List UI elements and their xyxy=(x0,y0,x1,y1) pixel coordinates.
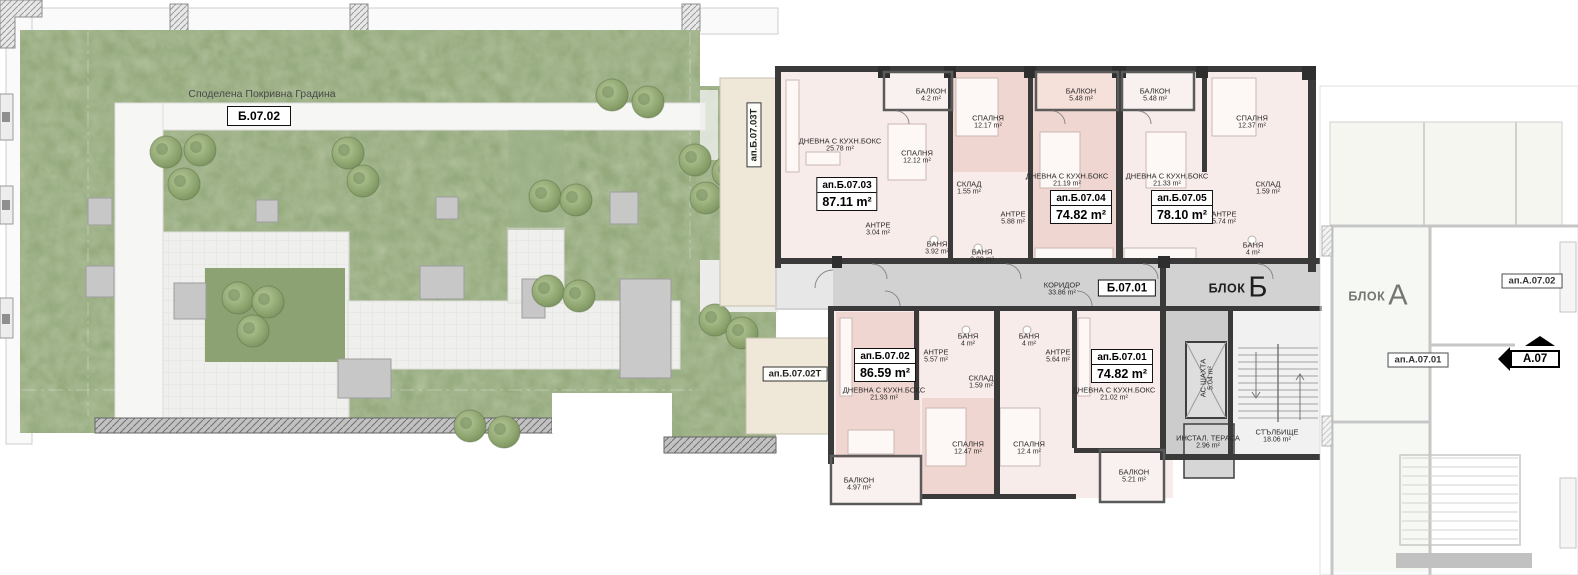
apartment-label-a0701[interactable]: ап.А.07.01 xyxy=(1388,353,1449,368)
room-label-balkon: БАЛКОН5.48 m² xyxy=(1140,86,1170,103)
apartment-card-b0705[interactable]: ап.Б.07.05 78.10 m² xyxy=(1151,190,1213,224)
apartment-card-b0704[interactable]: ап.Б.07.04 74.82 m² xyxy=(1050,190,1112,224)
room-label-dnevna: ДНЕВНА С КУХН.БОКС21.02 m² xyxy=(1073,385,1156,402)
room-label-spalnya: СПАЛНЯ12.37 m² xyxy=(1236,113,1268,130)
room-label-dnevna: ДНЕВНА С КУХН.БОКС21.93 m² xyxy=(843,385,926,402)
room-label-spalnya: СПАЛНЯ12.4 m² xyxy=(1013,439,1045,456)
room-label-sklad: СКЛАД1.59 m² xyxy=(1255,179,1280,196)
room-label-shaft: АС ШАХТА5.04 m² xyxy=(1198,359,1215,398)
room-label-antre: АНТРЕ3.04 m² xyxy=(865,220,890,237)
block-a-plan xyxy=(1320,86,1578,575)
block-b-name: БЛОК Б xyxy=(1209,274,1268,303)
floorplan-page: Споделена Покривна Градина Б.07.02 ап.Б.… xyxy=(0,0,1578,575)
apartment-card-b0702[interactable]: ап.Б.07.02 86.59 m² xyxy=(854,348,916,382)
apartment-card-b0703[interactable]: ап.Б.07.03 87.11 m² xyxy=(816,177,877,211)
room-label-balkon: БАЛКОН5.48 m² xyxy=(1066,86,1096,103)
room-label-banya: БАНЯ4 m² xyxy=(1243,240,1264,257)
block-a-name: БЛОК А xyxy=(1348,282,1407,311)
room-label-antre: АНТРЕ5.88 m² xyxy=(1000,209,1025,226)
room-label-banya: БАНЯ4 m² xyxy=(958,331,979,348)
apartment-card-b0701[interactable]: ап.Б.07.01 74.82 m² xyxy=(1091,349,1153,383)
floorplan-canvas xyxy=(0,0,1578,575)
room-label-spalnya: СПАЛНЯ12.17 m² xyxy=(972,113,1004,130)
room-label-dnevna: ДНЕВНА С КУХН.БОКС21.33 m² xyxy=(1126,171,1209,188)
room-label-antre: АНТРЕ5.57 m² xyxy=(923,347,948,364)
room-label-sklad: СКЛАД1.55 m² xyxy=(956,179,981,196)
garden-plan xyxy=(0,0,782,453)
neighbor-balcony-stubs xyxy=(0,94,13,338)
corridor-zone-label[interactable]: Б.07.01 xyxy=(1098,280,1156,297)
marker-up-arrow-icon xyxy=(1525,336,1555,346)
room-label-spalnya: СПАЛНЯ12.47 m² xyxy=(952,439,984,456)
terrace-label-b0703t[interactable]: ап.Б.07.03Т xyxy=(747,103,762,168)
room-label-banya: БАНЯ4 m² xyxy=(1019,331,1040,348)
room-label-sklad: СКЛАД1.59 m² xyxy=(968,373,993,390)
garden-title: Споделена Покривна Градина xyxy=(188,88,335,100)
room-label-balkon: БАЛКОН5.21 m² xyxy=(1119,467,1149,484)
marker-left-arrow-icon xyxy=(1498,347,1510,371)
room-label-instal-terasa: ИНСТАЛ. ТЕРАСА2.96 m² xyxy=(1176,433,1240,450)
a07-marker[interactable]: А.07 xyxy=(1498,336,1564,371)
room-label-dnevna: ДНЕВНА С КУХН.БОКС25.78 m² xyxy=(799,136,882,153)
apartment-label-a0702[interactable]: ап.А.07.02 xyxy=(1502,274,1563,289)
room-label-banya: БАНЯ3.92 m² xyxy=(925,239,949,256)
garden-zone-label[interactable]: Б.07.02 xyxy=(227,106,291,126)
room-label-balkon: БАЛКОН4.97 m² xyxy=(844,475,874,492)
room-label-balkon: БАЛКОН4.2 m² xyxy=(916,86,946,103)
room-label-koridor: КОРИДОР33.86 m² xyxy=(1044,280,1080,297)
terrace-label-b0702t[interactable]: ап.Б.07.02Т xyxy=(763,367,828,382)
room-label-antre: АНТРЕ5.74 m² xyxy=(1211,209,1236,226)
room-label-spalnya: СПАЛНЯ12.12 m² xyxy=(901,148,933,165)
marker-label: А.07 xyxy=(1510,350,1560,368)
room-label-banya: БАНЯ3.88 m² xyxy=(970,247,994,264)
room-label-dnevna: ДНЕВНА С КУХН.БОКС21.19 m² xyxy=(1026,171,1109,188)
room-label-stairs: СТЪЛБИЩЕ18.06 m² xyxy=(1256,427,1299,444)
room-label-antre: АНТРЕ5.64 m² xyxy=(1045,347,1070,364)
